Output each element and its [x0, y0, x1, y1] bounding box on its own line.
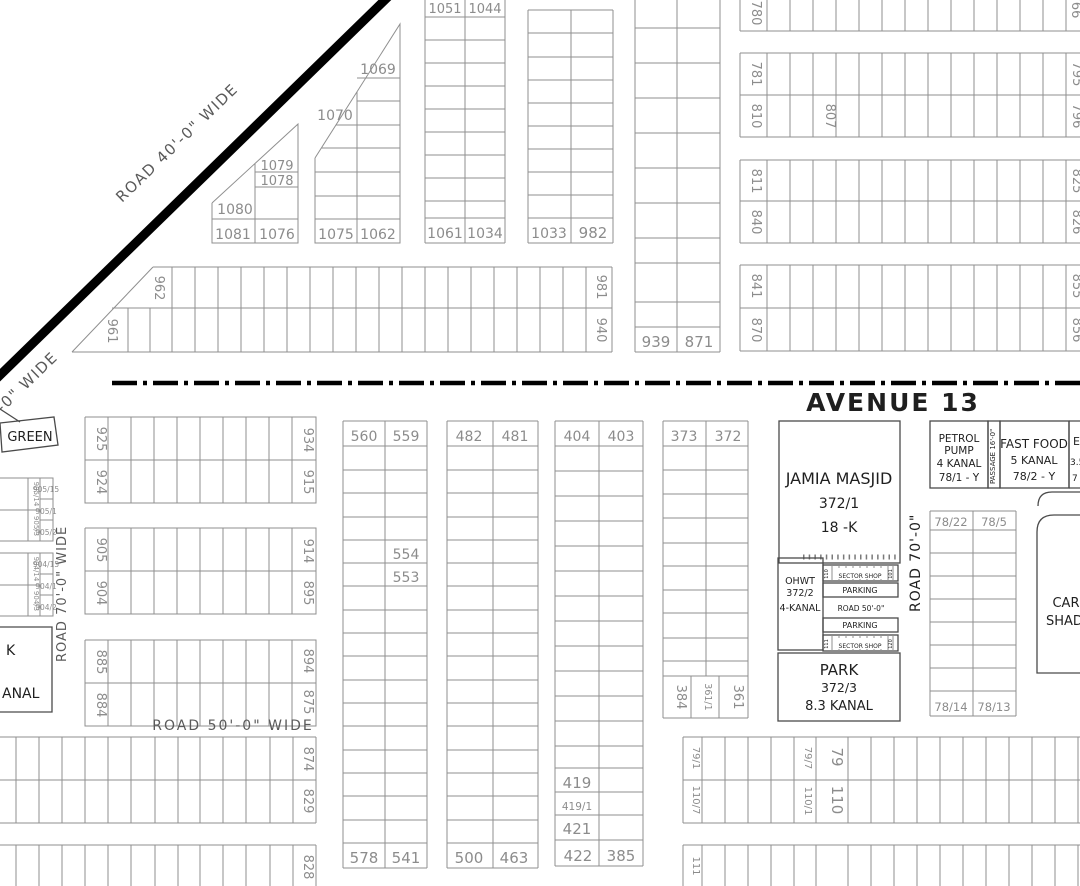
- passage-16-label: PASSAGE 16'-0": [989, 429, 997, 484]
- grid-strip-111: [683, 845, 1080, 886]
- plot-label-78-14: 78/14: [934, 700, 967, 714]
- plot-label-894: 894: [300, 649, 315, 674]
- plot-label-962: 962: [151, 276, 166, 301]
- plot-label-940: 940: [593, 318, 608, 343]
- edge-box-label-2: 3.5: [1070, 458, 1080, 468]
- road-50-inner-label: ROAD 50'-0": [838, 604, 885, 613]
- grid-strip-811-840: [740, 160, 1080, 243]
- plot-label-905: 905: [93, 538, 108, 563]
- grid-column-939: [635, 0, 720, 352]
- plot-label-111: 111: [690, 856, 701, 875]
- plot-label-384: 384: [673, 685, 688, 710]
- plot-label-78-13: 78/13: [977, 700, 1010, 714]
- plot-label-554: 554: [393, 547, 420, 563]
- plot-label-934: 934: [300, 428, 315, 453]
- grid-strip-925-924: [85, 417, 316, 503]
- plot-label-578: 578: [350, 849, 379, 867]
- grid-strip-905-904: [85, 528, 316, 614]
- plot-label-795: 795: [1069, 62, 1080, 87]
- plot-label-807: 807: [822, 104, 837, 129]
- grid-strip-841-870: [740, 265, 1080, 351]
- plot-label-904-14: 904/14: [32, 557, 40, 582]
- shop-no-101: 101: [888, 569, 894, 579]
- car-shade-label-2: SHAD: [1046, 614, 1080, 629]
- plot-label-1061: 1061: [427, 226, 463, 242]
- parking-1-label: PARKING: [842, 586, 877, 595]
- plot-label-372: 372: [715, 429, 742, 445]
- park-label-3: 8.3 KANAL: [805, 699, 874, 714]
- fastfood-label-3: 78/2 - Y: [1013, 470, 1056, 483]
- plot-label-1070: 1070: [317, 108, 353, 124]
- grid-column-1033: [528, 10, 613, 243]
- plot-label-810: 810: [748, 104, 763, 129]
- plot-label-904: 904: [93, 581, 108, 606]
- petrol-label-1: PETROL: [939, 433, 980, 445]
- plot-label-904-1: 904/1: [35, 582, 57, 591]
- plot-label-361-1: 361/1: [702, 683, 713, 710]
- plot-label-915: 915: [300, 470, 315, 495]
- plot-label-871: 871: [685, 333, 714, 351]
- parking-2-label: PARKING: [842, 621, 877, 630]
- plot-label-895: 895: [300, 581, 315, 606]
- plot-label-419: 419: [563, 774, 592, 792]
- plot-label-79-7: 79/7: [802, 747, 813, 769]
- road-fillet: [1038, 492, 1080, 506]
- plot-label-766: 766: [1068, 0, 1080, 18]
- jamia-label-2: 372/1: [819, 496, 859, 512]
- ohwt-label-1: OHWT: [785, 576, 815, 587]
- plot-label-904-3: 904/3: [32, 591, 40, 611]
- grid-column-78: [930, 511, 1016, 716]
- plot-label-981: 981: [593, 275, 608, 300]
- plot-label-1078: 1078: [260, 174, 293, 189]
- plot-label-796: 796: [1069, 104, 1080, 129]
- fastfood-label-1: FAST FOOD: [1000, 437, 1068, 451]
- plot-label-1069: 1069: [360, 62, 396, 78]
- plot-label-829: 829: [300, 789, 315, 814]
- plot-label-828: 828: [300, 855, 315, 880]
- grid-column-482: [447, 421, 538, 868]
- plot-label-422: 422: [564, 847, 593, 865]
- road-70-right-label: ROAD 70'-0": [908, 514, 924, 612]
- plot-label-110-1: 110/1: [802, 787, 813, 816]
- plot-label-421: 421: [563, 820, 592, 838]
- plot-label-840: 840: [748, 210, 763, 235]
- avenue-13-label: AVENUE 13: [806, 388, 980, 417]
- plot-label-925: 925: [93, 427, 108, 452]
- road-40-fragment-label: -0" WIDE: [0, 348, 62, 416]
- grid-strip-781-810: [740, 53, 1080, 137]
- grid-strip-874-829: [0, 737, 316, 823]
- car-shade-box: [1037, 515, 1080, 673]
- plot-label-78-22: 78/22: [934, 515, 967, 529]
- shop-no-111: 111: [824, 639, 830, 649]
- plot-label-1075: 1075: [318, 227, 354, 243]
- plot-label-361: 361: [730, 685, 745, 710]
- park-label-1: PARK: [820, 661, 860, 679]
- edge-box-label-3: 7: [1072, 474, 1078, 484]
- jamia-masjid-box: [779, 421, 900, 563]
- plot-label-961: 961: [104, 319, 119, 344]
- plot-label-914: 914: [300, 539, 315, 564]
- plot-label-1080: 1080: [217, 202, 253, 218]
- plot-label-855: 855: [1069, 274, 1080, 299]
- plot-label-553: 553: [393, 570, 420, 586]
- plot-label-905-1: 905/1: [35, 507, 57, 516]
- plot-label-481: 481: [502, 429, 529, 445]
- plot-label-874: 874: [300, 747, 315, 772]
- plot-label-79-1: 79/1: [690, 747, 701, 769]
- plot-label-1081: 1081: [215, 227, 251, 243]
- plat-map: ROAD 40'-0" WIDE -0" WIDE AVENUE 13 ROAD…: [0, 0, 1080, 886]
- plot-label-79: 79: [828, 747, 846, 766]
- plot-label-385: 385: [607, 847, 636, 865]
- plot-label-875: 875: [300, 690, 315, 715]
- plot-label-811: 811: [748, 169, 763, 194]
- plot-label-403: 403: [608, 429, 635, 445]
- plot-label-110-7: 110/7: [690, 786, 701, 815]
- plot-label-1076: 1076: [259, 227, 295, 243]
- plot-label-825: 825: [1069, 169, 1080, 194]
- green-label: GREEN: [7, 430, 52, 445]
- plot-label-1044: 1044: [468, 2, 501, 17]
- map-canvas: ROAD 40'-0" WIDE -0" WIDE AVENUE 13 ROAD…: [0, 0, 1080, 886]
- plot-label-560: 560: [351, 429, 378, 445]
- grid-column-560: [343, 421, 427, 868]
- plot-label-781: 781: [748, 62, 763, 87]
- plot-label-419-1: 419/1: [562, 801, 592, 813]
- plot-label-1034: 1034: [467, 226, 503, 242]
- park-cut-label-1: K: [6, 643, 16, 659]
- plot-label-905-3: 905/3: [32, 516, 40, 536]
- plot-label-905-14: 905/14: [32, 482, 40, 507]
- plot-label-541: 541: [392, 849, 421, 867]
- plot-label-482: 482: [456, 429, 483, 445]
- road-40-label: ROAD 40'-0" WIDE: [112, 80, 242, 206]
- location-arrow: [476, 336, 530, 606]
- sector-shop-1-label: SECTOR SHOP: [839, 573, 882, 580]
- ohwt-label-2: 372/2: [786, 588, 813, 599]
- plot-label-885: 885: [93, 650, 108, 675]
- plot-label-110: 110: [828, 786, 846, 815]
- petrol-label-3: 4 KANAL: [937, 458, 982, 470]
- jamia-label-1: JAMIA MASJID: [785, 469, 893, 488]
- ohwt-label-3: 4-KANAL: [780, 603, 822, 614]
- plot-label-856: 856: [1069, 318, 1080, 343]
- grid-strip-885-884: [85, 640, 316, 726]
- sector-shop-2-label: SECTOR SHOP: [839, 643, 882, 650]
- grid-strip-79-110: [683, 737, 1080, 823]
- plot-label-463: 463: [500, 849, 529, 867]
- plot-label-500: 500: [455, 849, 484, 867]
- plot-label-939: 939: [642, 333, 671, 351]
- petrol-label-2: PUMP: [944, 445, 973, 457]
- plot-label-559: 559: [393, 429, 420, 445]
- park-label-2: 372/3: [821, 680, 857, 695]
- plot-label-870: 870: [748, 318, 763, 343]
- plot-label-1033: 1033: [531, 226, 567, 242]
- road-70-left-label: ROAD 70'-0" WIDE: [55, 526, 70, 662]
- fastfood-label-2: 5 KANAL: [1011, 454, 1059, 467]
- plot-label-1051: 1051: [428, 2, 461, 17]
- shop-no-110: 110: [824, 569, 830, 579]
- grid-strip-828: [0, 845, 316, 886]
- plot-label-826: 826: [1069, 210, 1080, 235]
- car-shade-label-1: CAR: [1052, 596, 1079, 611]
- plot-label-924: 924: [93, 470, 108, 495]
- plot-label-404: 404: [564, 429, 591, 445]
- shop-no-120: 120: [888, 639, 894, 649]
- grid-column-1051: [425, 0, 505, 243]
- plot-label-780: 780: [748, 1, 763, 26]
- plot-label-982: 982: [579, 224, 608, 242]
- jamia-label-3: 18 -K: [821, 520, 858, 536]
- grid-strip-780: [740, 0, 1080, 31]
- road-50-wide-label: ROAD 50'-0" WIDE: [152, 718, 313, 734]
- plot-label-884: 884: [93, 693, 108, 718]
- plot-label-841: 841: [748, 274, 763, 299]
- plot-label-373: 373: [671, 429, 698, 445]
- grid-column-373: [663, 421, 748, 718]
- location-arrow-shaft: [484, 390, 508, 606]
- plot-label-1062: 1062: [360, 227, 396, 243]
- plot-label-78-5: 78/5: [981, 515, 1007, 529]
- plot-label-1079: 1079: [260, 159, 293, 174]
- edge-box-label-1: E: [1073, 435, 1080, 448]
- grid-column-404: [555, 421, 643, 866]
- petrol-label-4: 78/1 - Y: [939, 472, 980, 484]
- park-cut-label-2: ANAL: [2, 686, 40, 702]
